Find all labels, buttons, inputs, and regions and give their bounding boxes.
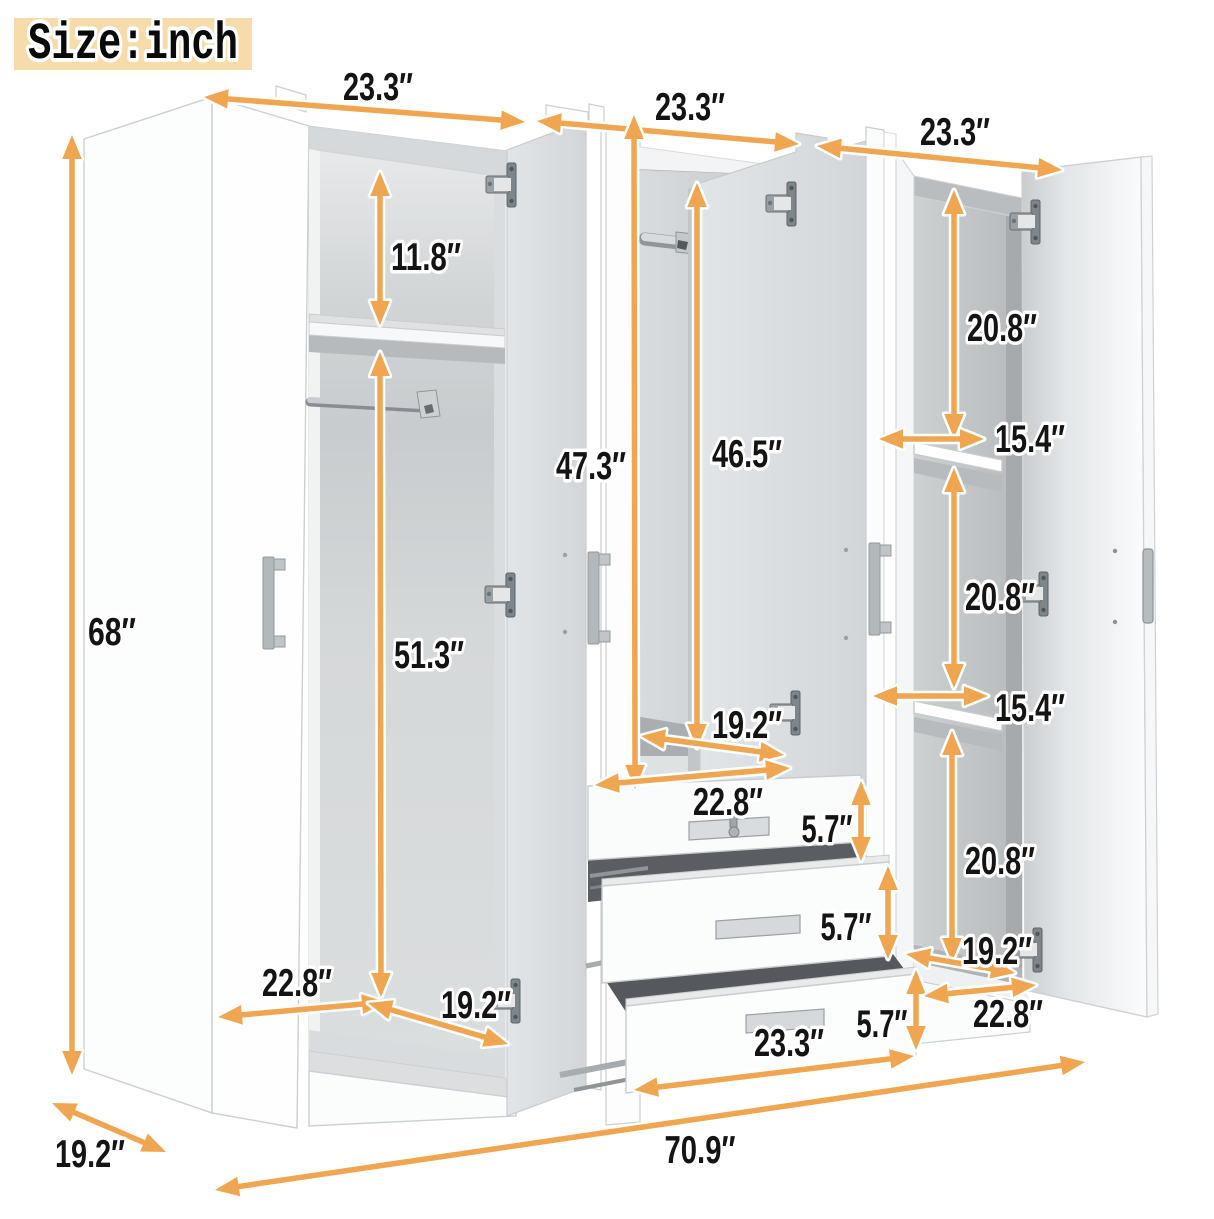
svg-text:19.2″: 19.2″ xyxy=(962,930,1032,973)
svg-text:19.2″: 19.2″ xyxy=(441,984,511,1027)
svg-text:22.8″: 22.8″ xyxy=(693,781,763,824)
svg-text:11.8″: 11.8″ xyxy=(391,236,461,279)
svg-text:51.3″: 51.3″ xyxy=(394,634,464,677)
svg-text:5.7″: 5.7″ xyxy=(802,808,853,851)
svg-text:47.3″: 47.3″ xyxy=(556,445,626,488)
svg-text:5.7″: 5.7″ xyxy=(857,1003,908,1046)
svg-text:20.8″: 20.8″ xyxy=(965,576,1035,619)
svg-text:46.5″: 46.5″ xyxy=(712,433,782,476)
svg-text:19.2″: 19.2″ xyxy=(712,704,782,747)
svg-text:20.8″: 20.8″ xyxy=(965,840,1035,883)
svg-text:23.3″: 23.3″ xyxy=(754,1022,824,1065)
svg-text:70.9″: 70.9″ xyxy=(665,1129,736,1172)
svg-text:Size:inch: Size:inch xyxy=(28,15,238,74)
svg-text:15.4″: 15.4″ xyxy=(995,687,1065,730)
svg-text:15.4″: 15.4″ xyxy=(995,418,1065,461)
svg-text:23.3″: 23.3″ xyxy=(343,66,413,109)
svg-text:20.8″: 20.8″ xyxy=(967,307,1037,350)
svg-text:22.8″: 22.8″ xyxy=(262,962,332,1005)
svg-text:23.3″: 23.3″ xyxy=(920,111,990,154)
svg-text:19.2″: 19.2″ xyxy=(55,1133,125,1176)
svg-text:68″: 68″ xyxy=(88,611,136,654)
svg-text:22.8″: 22.8″ xyxy=(973,993,1043,1036)
svg-text:5.7″: 5.7″ xyxy=(821,906,872,949)
svg-text:23.3″: 23.3″ xyxy=(655,86,725,129)
